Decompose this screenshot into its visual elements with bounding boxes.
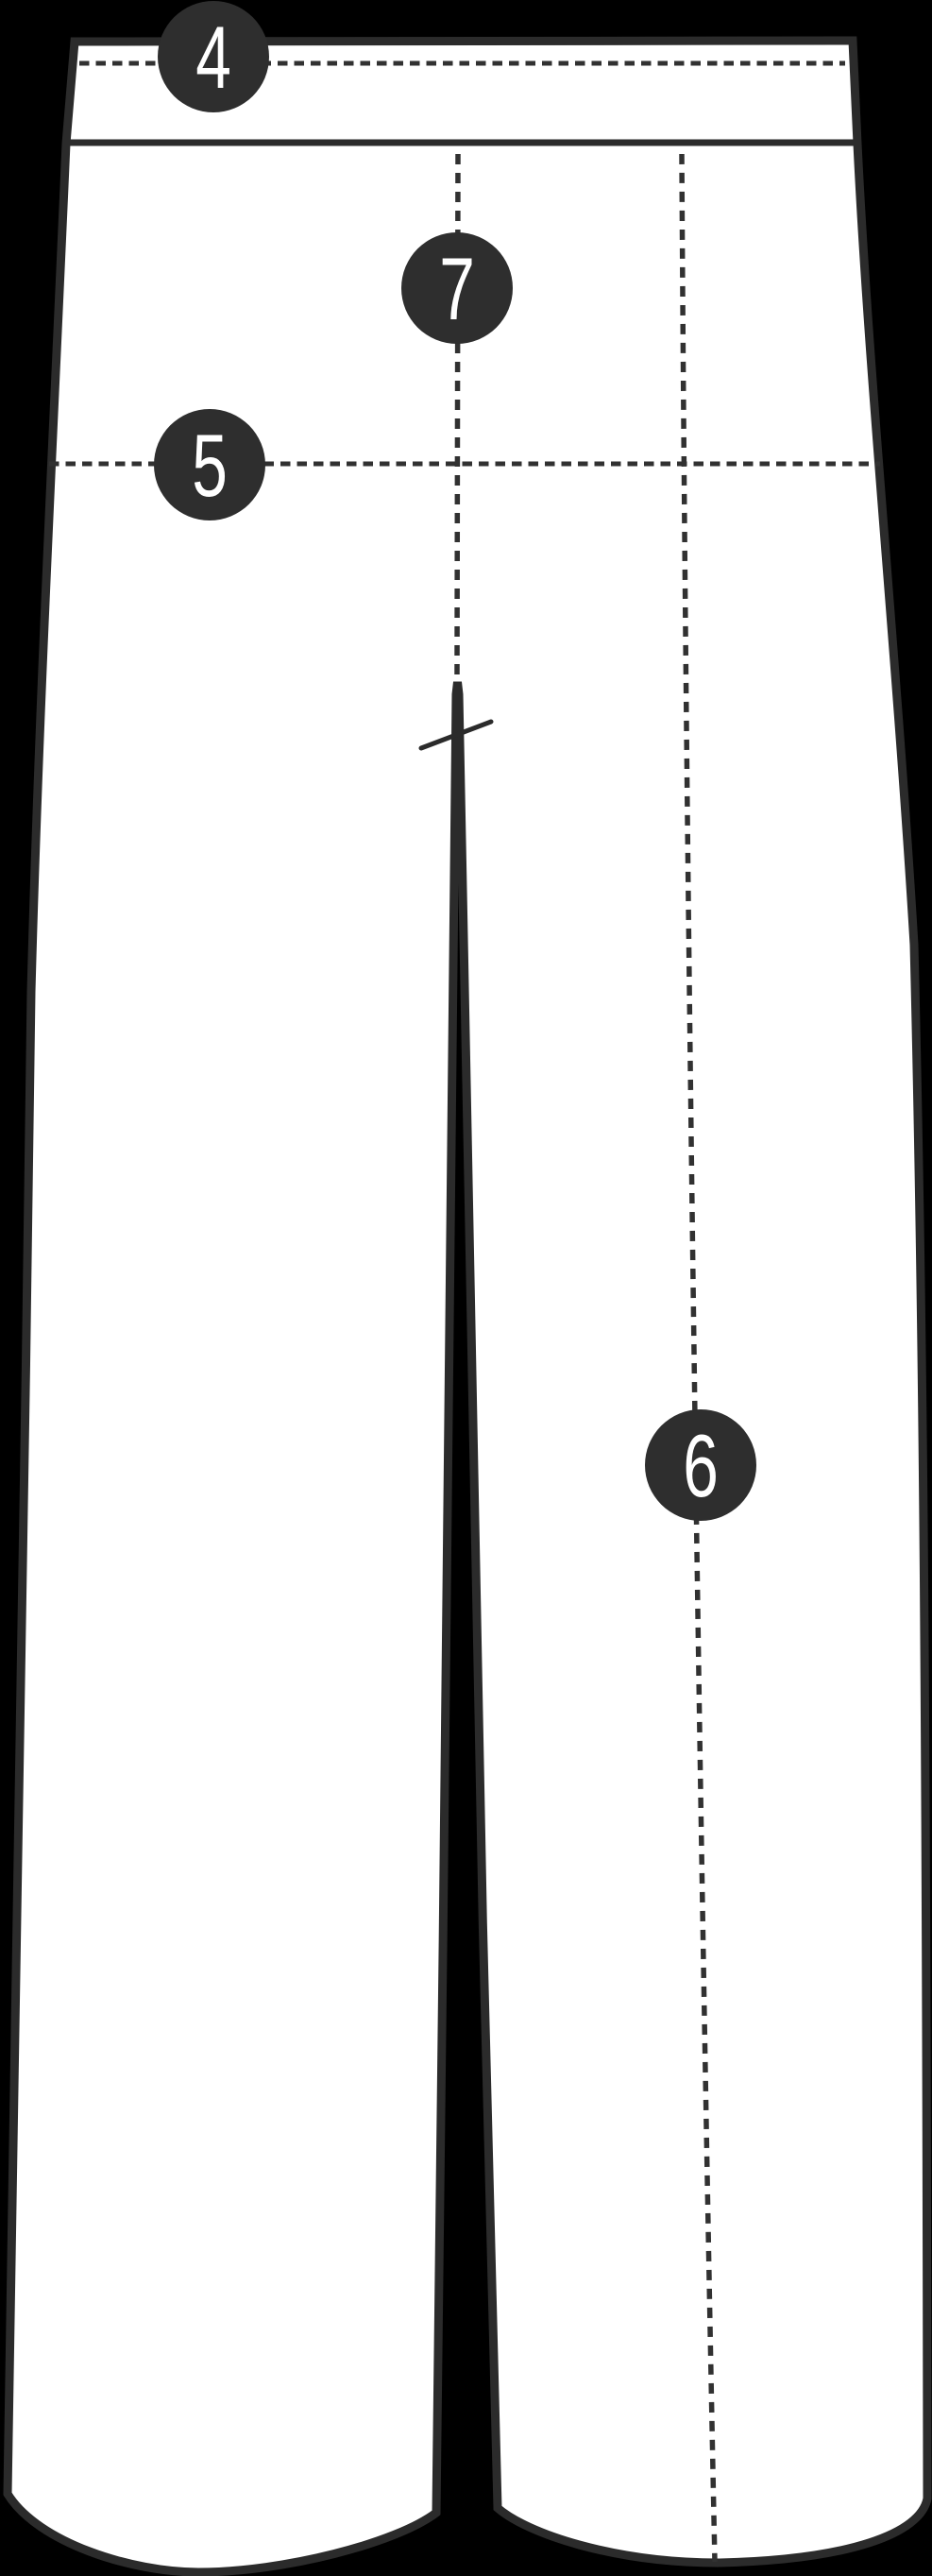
marker-4-label: 4 (195, 9, 231, 107)
pants-measurement-diagram: 4 7 5 6 (0, 0, 932, 2576)
marker-6-label: 6 (683, 1417, 719, 1515)
marker-5-label: 5 (192, 417, 228, 515)
pants-diagram-svg: 4 7 5 6 (0, 0, 932, 2576)
marker-7-label: 7 (439, 240, 475, 338)
